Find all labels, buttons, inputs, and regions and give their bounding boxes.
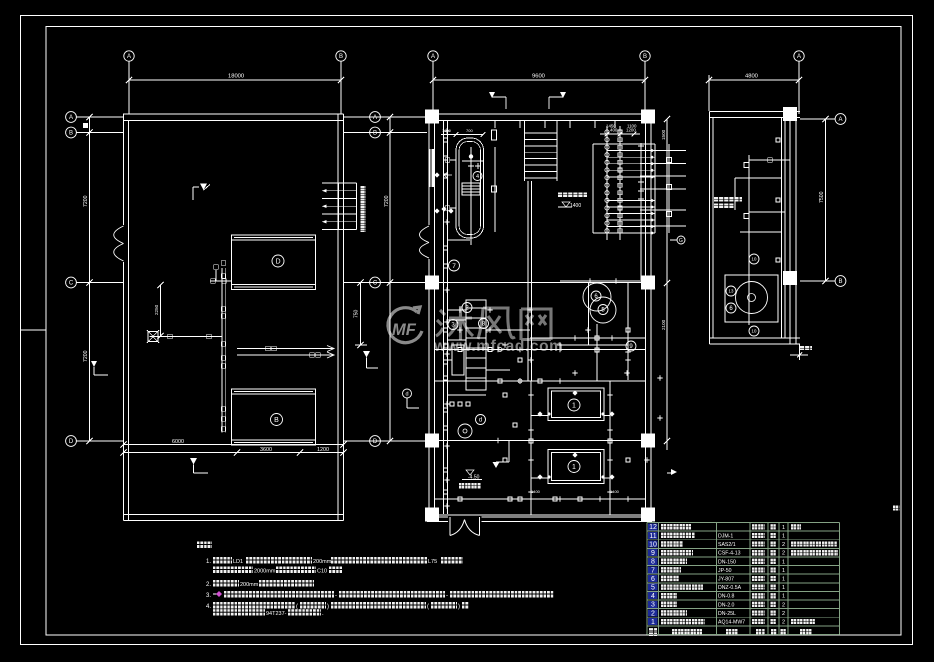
svg-text:2000mm: 2000mm <box>254 569 276 575</box>
svg-text:JP-50: JP-50 <box>718 568 732 574</box>
svg-text:2.: 2. <box>206 582 211 588</box>
svg-text:CSF-4-13: CSF-4-13 <box>718 551 741 557</box>
svg-text:18000: 18000 <box>228 74 244 80</box>
svg-text:1: 1 <box>782 594 785 600</box>
svg-text:1: 1 <box>782 577 785 583</box>
svg-text:D: D <box>69 439 74 445</box>
svg-text:7200: 7200 <box>83 350 89 362</box>
svg-text:9: 9 <box>651 550 655 557</box>
svg-text:2: 2 <box>782 602 785 608</box>
svg-text:A: A <box>431 54 435 60</box>
svg-text:DN-150: DN-150 <box>718 559 736 565</box>
svg-text:): ) <box>327 604 329 610</box>
svg-text:B: B <box>274 417 279 424</box>
svg-text:94T237-: 94T237- <box>266 611 287 617</box>
svg-text:3: 3 <box>651 602 655 609</box>
svg-text:1: 1 <box>782 568 785 574</box>
svg-text:2: 2 <box>782 620 785 626</box>
svg-text:7200: 7200 <box>384 195 390 207</box>
svg-text:3600: 3600 <box>260 447 272 453</box>
svg-text:A: A <box>69 115 73 121</box>
svg-text:2: 2 <box>782 551 785 557</box>
svg-text:d: d <box>405 391 408 397</box>
svg-text:7: 7 <box>651 567 655 574</box>
svg-text:4: 4 <box>651 593 655 600</box>
svg-text:DN-25L: DN-25L <box>718 611 736 617</box>
svg-text:7200: 7200 <box>83 195 89 207</box>
svg-text:700: 700 <box>466 128 473 133</box>
svg-text:400: 400 <box>610 128 618 133</box>
svg-text:13: 13 <box>729 289 734 294</box>
svg-text:B: B <box>339 54 343 60</box>
svg-text:11: 11 <box>649 533 656 540</box>
svg-text:4.: 4. <box>206 604 211 610</box>
svg-text:2: 2 <box>651 610 655 617</box>
svg-text:4800: 4800 <box>745 74 758 80</box>
svg-text:1: 1 <box>651 619 655 626</box>
svg-text:DNZ-0.5A: DNZ-0.5A <box>718 585 742 591</box>
svg-text:1400: 1400 <box>570 203 581 209</box>
svg-text:1500: 1500 <box>661 129 666 140</box>
svg-text:D: D <box>373 439 378 445</box>
svg-text:6: 6 <box>651 576 655 583</box>
svg-text:8: 8 <box>651 559 655 566</box>
svg-text:A: A <box>838 117 842 123</box>
svg-text:(: ( <box>296 604 298 610</box>
svg-text:AQ14-MW7: AQ14-MW7 <box>718 620 745 626</box>
svg-text:LD1: LD1 <box>233 559 243 565</box>
svg-text:12: 12 <box>649 524 657 531</box>
svg-text:B: B <box>69 131 73 137</box>
svg-text:1: 1 <box>782 585 785 591</box>
svg-text:7500: 7500 <box>819 191 825 203</box>
svg-text:10: 10 <box>752 329 757 334</box>
svg-text:B: B <box>643 54 647 60</box>
svg-text:JY-807: JY-807 <box>718 577 734 583</box>
svg-text:SAS2/1: SAS2/1 <box>718 542 736 548</box>
svg-text:www.mfcad.com: www.mfcad.com <box>433 338 564 355</box>
svg-text:DJM-1: DJM-1 <box>718 533 733 539</box>
svg-text:1: 1 <box>782 525 785 531</box>
svg-text:A: A <box>373 115 377 121</box>
svg-text:1400: 1400 <box>610 489 620 494</box>
svg-text:DN-2.0: DN-2.0 <box>718 602 735 608</box>
svg-text:(: ( <box>427 604 429 610</box>
svg-text:d: d <box>479 418 482 424</box>
svg-text:A: A <box>797 54 801 60</box>
svg-text:9600: 9600 <box>532 74 545 80</box>
svg-text:C: C <box>69 281 74 287</box>
svg-text:1: 1 <box>572 403 576 410</box>
svg-text:1: 1 <box>572 464 576 471</box>
svg-text:5: 5 <box>651 585 655 592</box>
svg-text:2: 2 <box>782 611 785 617</box>
svg-text:C10: C10 <box>317 569 327 575</box>
svg-text:750: 750 <box>354 309 360 318</box>
svg-text:2100: 2100 <box>661 319 666 330</box>
svg-text:2: 2 <box>782 542 785 548</box>
svg-text:7: 7 <box>452 263 456 270</box>
svg-text:1200: 1200 <box>626 128 636 133</box>
svg-text:G: G <box>679 238 683 244</box>
svg-text:B: B <box>838 279 842 285</box>
svg-text:MF: MF <box>392 321 417 339</box>
svg-text:A: A <box>127 54 131 60</box>
svg-text:D: D <box>275 259 280 266</box>
svg-text:200mm: 200mm <box>240 582 259 588</box>
svg-text:1200: 1200 <box>317 447 329 453</box>
svg-text:3.: 3. <box>206 593 211 599</box>
svg-text:C: C <box>373 281 378 287</box>
svg-text:10: 10 <box>649 541 657 548</box>
svg-text:2250: 2250 <box>154 304 159 315</box>
svg-text:6000: 6000 <box>172 439 184 445</box>
svg-text:200mm: 200mm <box>313 559 332 565</box>
svg-text:): ) <box>458 604 460 610</box>
svg-text:4: 4 <box>476 174 479 180</box>
svg-text:-: - <box>446 593 448 599</box>
svg-text:B: B <box>373 131 377 137</box>
svg-text:1400: 1400 <box>531 489 541 494</box>
svg-text:1: 1 <box>782 559 785 565</box>
svg-text:1: 1 <box>782 533 785 539</box>
svg-text:-: - <box>335 593 337 599</box>
svg-text:1.: 1. <box>206 559 211 565</box>
svg-text:L75: L75 <box>428 559 437 565</box>
svg-text:DN-0.8: DN-0.8 <box>718 594 735 600</box>
svg-text:10: 10 <box>752 257 757 262</box>
